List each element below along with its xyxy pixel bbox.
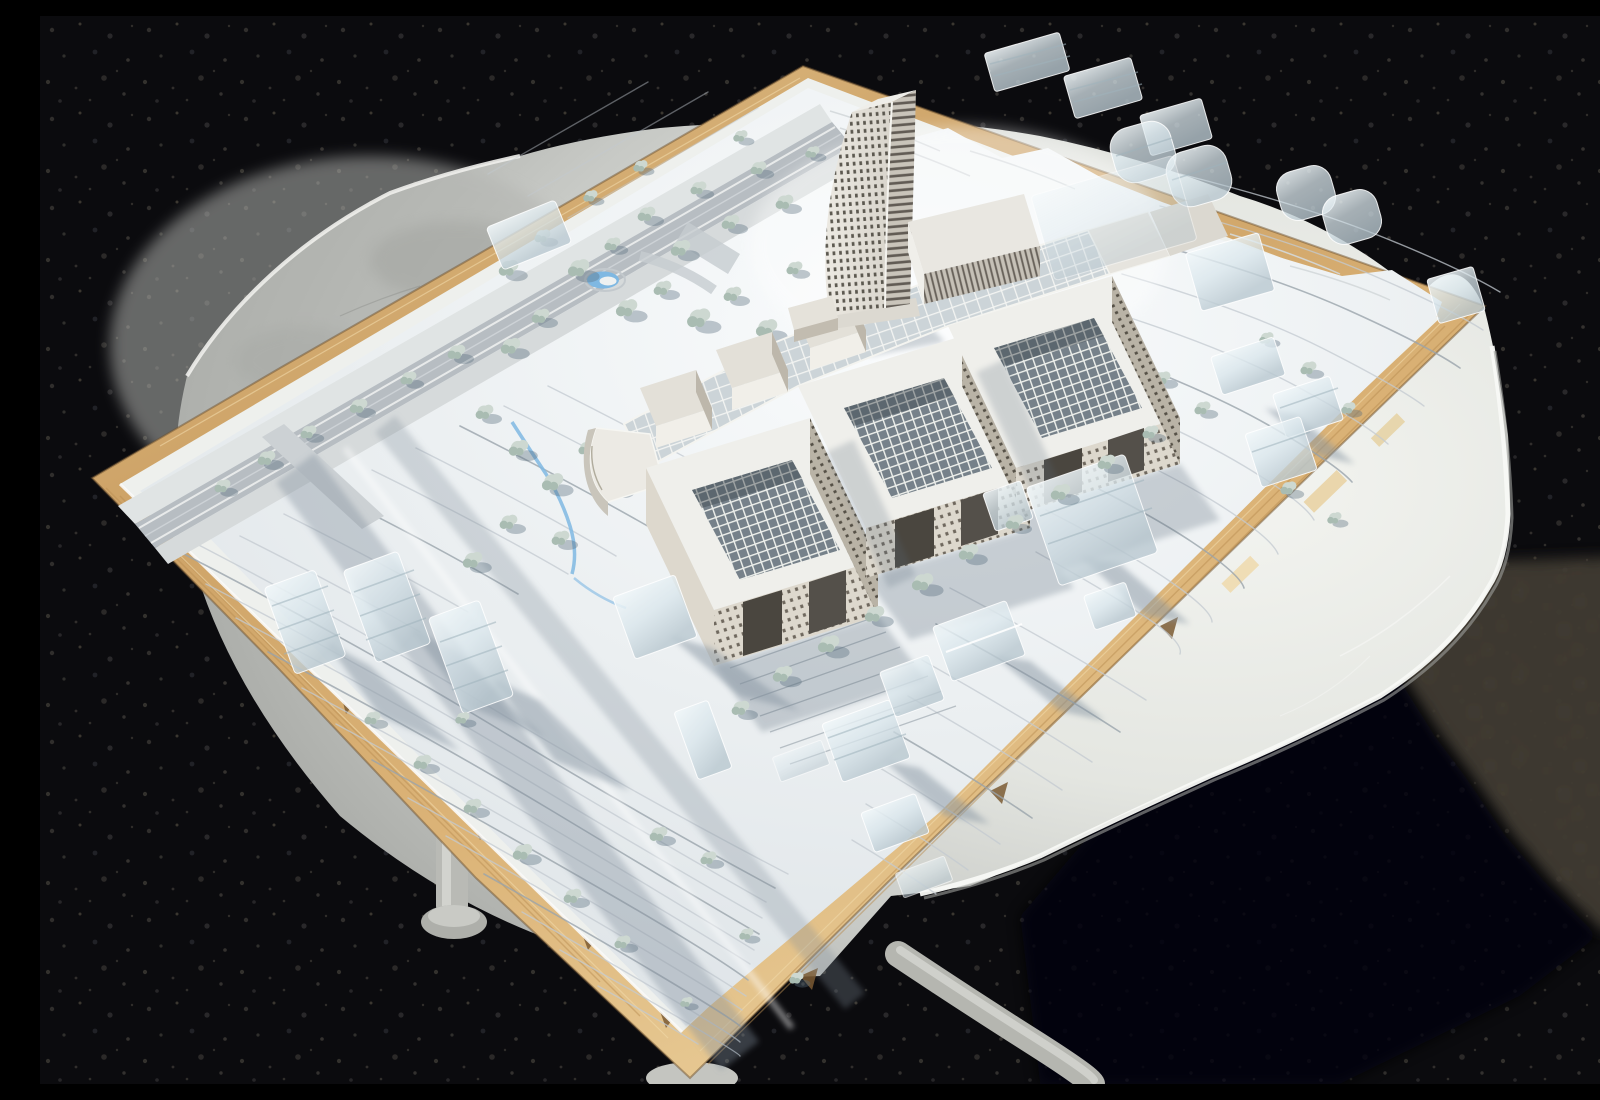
model-photograph bbox=[40, 16, 1600, 1084]
table-leg-foot-top bbox=[428, 905, 480, 927]
scene-canvas bbox=[40, 16, 1600, 1084]
pond-plaza-disc bbox=[600, 277, 617, 286]
